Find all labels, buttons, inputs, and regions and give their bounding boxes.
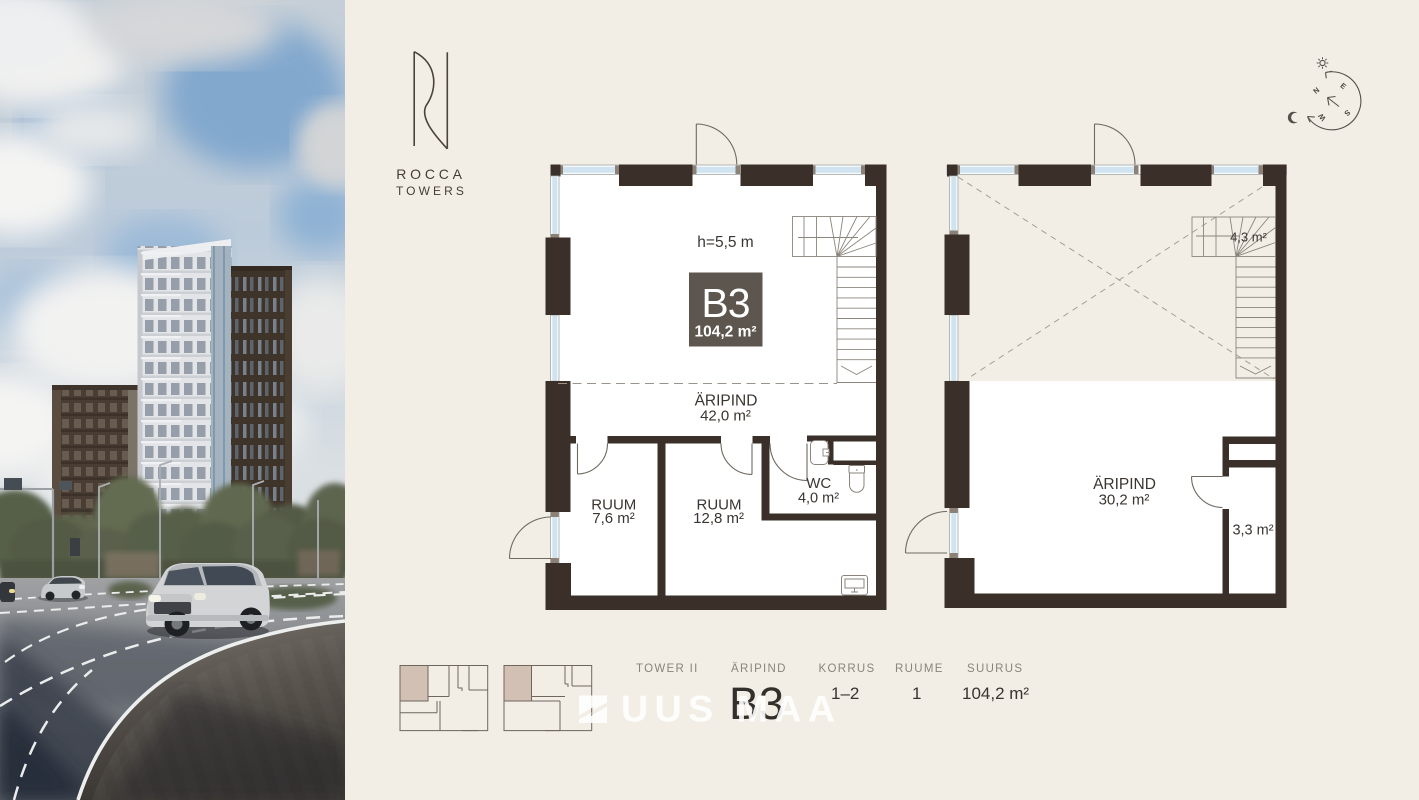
svg-text:h=5,5 m: h=5,5 m [697, 234, 753, 251]
svg-text:7,6 m²: 7,6 m² [592, 510, 635, 527]
svg-text:ROCCA: ROCCA [396, 166, 466, 182]
svg-text:42,0 m²: 42,0 m² [700, 408, 751, 425]
svg-text:4,0 m²: 4,0 m² [798, 491, 839, 507]
svg-text:N: N [1311, 85, 1321, 95]
svg-text:12,8 m²: 12,8 m² [693, 510, 744, 527]
svg-text:TOWERS: TOWERS [396, 184, 467, 198]
svg-text:B3: B3 [701, 280, 749, 326]
svg-text:3,3 m²: 3,3 m² [1232, 523, 1273, 539]
svg-text:WC: WC [806, 475, 831, 492]
svg-text:ÄRIPIND: ÄRIPIND [1093, 476, 1156, 493]
svg-text:104,2 m²: 104,2 m² [694, 324, 756, 341]
svg-text:E: E [1338, 81, 1348, 91]
svg-text:30,2 m²: 30,2 m² [1099, 492, 1150, 509]
svg-text:4,3 m²: 4,3 m² [1230, 230, 1268, 245]
svg-text:W: W [1316, 111, 1328, 123]
svg-text:UUS MAA: UUS MAA [621, 693, 842, 727]
svg-text:S: S [1342, 108, 1352, 118]
